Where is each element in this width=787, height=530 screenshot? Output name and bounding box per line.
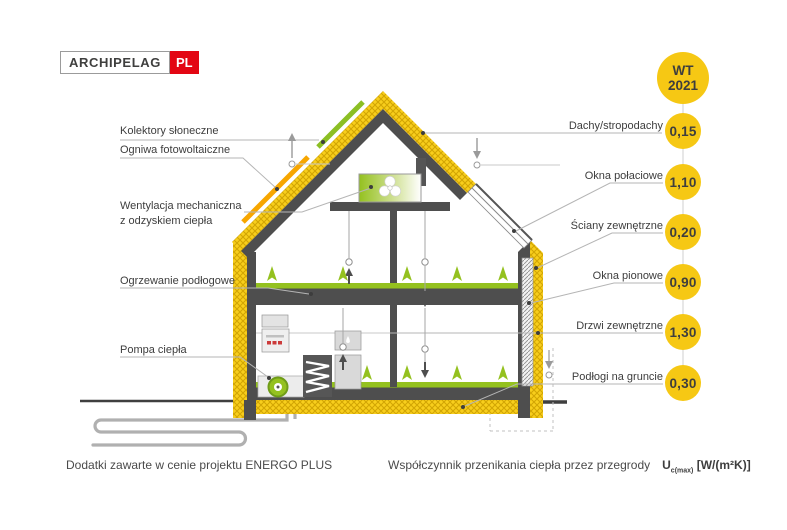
u-value-sciany: 0,20 bbox=[665, 214, 701, 250]
left-foundation bbox=[244, 400, 256, 420]
archipelag-logo: ARCHIPELAG PL bbox=[60, 51, 199, 74]
label-dachy-stropodachy: Dachy/stropodachy bbox=[569, 120, 663, 132]
label-sciany-zewnetrzne: Ściany zewnętrzne bbox=[571, 220, 663, 232]
u-value-okna-polaciowe: 1,10 bbox=[665, 164, 701, 200]
label-ogrzewanie-podlogowe: Ogrzewanie podłogowe bbox=[120, 275, 235, 287]
label-drzwi-zewnetrzne: Drzwi zewnętrzne bbox=[576, 320, 663, 332]
label-podlogi-na-gruncie: Podłogi na gruncie bbox=[572, 371, 663, 383]
u-value-dachy: 0,15 bbox=[665, 113, 701, 149]
u-coefficient-symbol: Uc(max) [W/(m²K)] bbox=[662, 458, 751, 472]
circulation-pump-icon bbox=[269, 378, 288, 397]
ventilation-unit bbox=[359, 174, 421, 202]
u-value-drzwi: 1,30 bbox=[665, 314, 701, 350]
label-okna-pionowe: Okna pionowe bbox=[593, 270, 663, 282]
mid-slab bbox=[256, 289, 518, 306]
badge-top: WT bbox=[673, 63, 694, 78]
attic-slab bbox=[330, 202, 450, 211]
hot-water-tank bbox=[303, 355, 332, 397]
label-wentylacja-line2: z odzyskiem ciepła bbox=[120, 215, 212, 227]
label-wentylacja-line1: Wentylacja mechaniczna bbox=[120, 200, 241, 212]
u-value-podlogi: 0,30 bbox=[665, 365, 701, 401]
badge-bottom: 2021 bbox=[668, 78, 698, 93]
left-wall-insulation bbox=[233, 243, 247, 400]
label-okna-polaciowe: Okna połaciowe bbox=[585, 170, 663, 182]
footer-left-text: Dodatki zawarte w cenie projektu ENERGO … bbox=[66, 458, 332, 472]
drainage-arrow bbox=[545, 350, 553, 378]
logo-pl-badge: PL bbox=[170, 51, 199, 74]
roof-left-insulation bbox=[232, 91, 383, 251]
energo-plus-infographic: ARCHIPELAG PL WT 2021 Kolektory słoneczn… bbox=[0, 0, 787, 530]
appliance-cabinet bbox=[335, 355, 361, 389]
heat-pump-controller bbox=[262, 329, 289, 352]
footer-right-text: Współczynnik przenikania ciepła przez pr… bbox=[388, 458, 751, 474]
label-pompa-ciepla: Pompa ciepła bbox=[120, 344, 187, 356]
vertical-window-door bbox=[522, 258, 533, 386]
underslab-insulation bbox=[256, 400, 518, 414]
label-ogniwa-fotowoltaiczne: Ogniwa fotowoltaiczne bbox=[120, 144, 230, 156]
wall-unit bbox=[262, 315, 288, 327]
logo-brand-text: ARCHIPELAG bbox=[60, 51, 170, 74]
air-exhaust-arrow bbox=[473, 138, 560, 168]
appliance-washer bbox=[335, 331, 361, 350]
mid-floor-heating-strip bbox=[256, 283, 518, 289]
label-kolektory-sloneczne: Kolektory słoneczne bbox=[120, 125, 218, 137]
wt-2021-badge: WT 2021 bbox=[657, 52, 709, 104]
roof-window bbox=[468, 184, 532, 248]
u-value-okna-pionowe: 0,90 bbox=[665, 264, 701, 300]
left-wall bbox=[247, 252, 256, 400]
u-coefficient-caption: Współczynnik przenikania ciepła przez pr… bbox=[388, 458, 650, 472]
